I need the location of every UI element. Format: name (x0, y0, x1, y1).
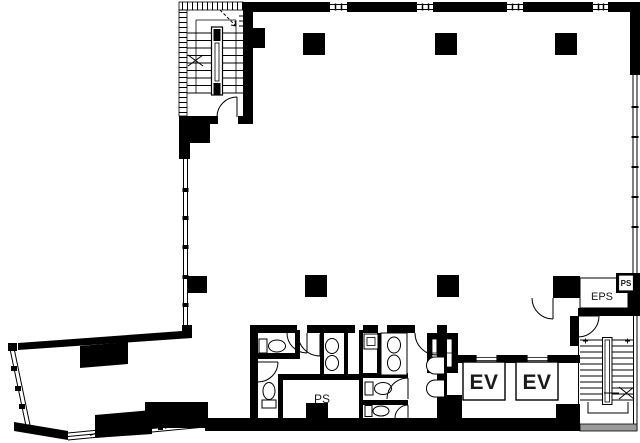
ps-room: PS (306, 392, 330, 421)
door-arc (387, 378, 408, 399)
window-band (633, 75, 637, 273)
column (145, 402, 208, 428)
floor-plan: EPS PS EV EV (0, 0, 640, 443)
walk-line-break (619, 387, 634, 399)
door-arc (258, 362, 278, 382)
stair-northwest (179, 2, 253, 124)
column (305, 275, 327, 297)
column (306, 403, 328, 421)
walk-line-dashed (220, 10, 236, 26)
sink-icon (364, 334, 378, 349)
southwest-corridor (8, 325, 208, 440)
column (188, 276, 207, 293)
sink-icon (381, 333, 407, 375)
eps-room: EPS PS (553, 273, 640, 316)
restroom-block: PS (250, 325, 447, 430)
elevator-right-label: EV (522, 371, 551, 394)
toilet-icon (259, 339, 286, 353)
right-wall (628, 2, 640, 431)
toilet-icon (365, 406, 389, 417)
sink-icon (326, 339, 339, 371)
door-arc (395, 405, 408, 418)
stair-handrail (603, 338, 613, 405)
walk-line-break (188, 55, 203, 66)
stair-outer-wall (634, 316, 638, 431)
top-wall (253, 2, 640, 12)
column (437, 275, 459, 297)
walk-line-arrow (231, 16, 245, 26)
corner-wall (14, 422, 68, 440)
column (555, 33, 577, 55)
door-arc (217, 97, 237, 117)
hatched-wall-left (179, 10, 187, 116)
toilet-icon (262, 383, 276, 409)
column (435, 33, 457, 55)
stair-southeast (556, 316, 634, 428)
column (303, 33, 325, 55)
ps-corner-label: PS (621, 279, 632, 288)
hatched-wall-top (179, 2, 243, 10)
urinal-icon (427, 380, 445, 397)
column (95, 410, 152, 438)
column (556, 404, 580, 428)
elevator-left-label: EV (469, 371, 498, 394)
eps-label: EPS (591, 291, 613, 303)
column (253, 28, 265, 48)
left-wall (179, 116, 210, 331)
column (80, 342, 128, 368)
stair-handrail (212, 27, 223, 95)
door-arc (532, 298, 553, 319)
halftone-edge (580, 424, 637, 431)
urinal-icon (427, 357, 445, 374)
door-arc (578, 316, 599, 337)
floor-plan-canvas: EPS PS EV EV (0, 0, 640, 443)
